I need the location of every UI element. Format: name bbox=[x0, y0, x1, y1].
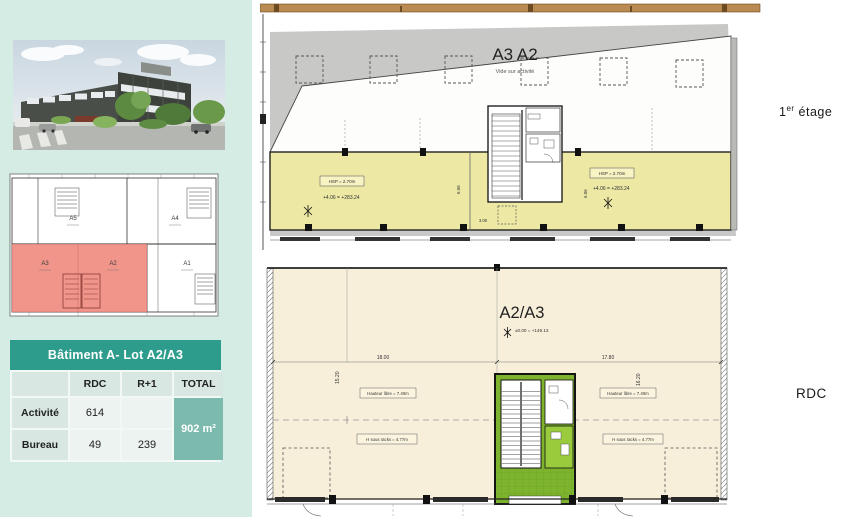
first-floor-label: 1er étage bbox=[779, 104, 832, 119]
lot-label-a1: A1 bbox=[183, 261, 191, 267]
plan2-left-wall bbox=[267, 268, 273, 500]
plan2-height-label-right: Hauteur libre = 7.40m bbox=[607, 391, 649, 396]
col-header-rdc: RDC bbox=[70, 372, 120, 396]
value-bureau-rdc: 49 bbox=[70, 430, 120, 460]
plan1-level-right: +4.06 = +283.24 bbox=[593, 186, 630, 192]
table-grid: RDC R+1 TOTAL Activité 614 902 m² Bureau… bbox=[10, 370, 221, 462]
plan2-dim-1520: 15.20 bbox=[335, 371, 341, 384]
value-activite-r1 bbox=[122, 398, 172, 428]
floorplan-first-floor: A3 A2 Vide sur activité bbox=[260, 2, 762, 254]
plan1-dim-606-right: 6.06 bbox=[583, 189, 588, 198]
row-label-activite: Activité bbox=[12, 398, 68, 428]
first-floor-word: étage bbox=[795, 105, 833, 119]
lot-label-a5: A5 bbox=[69, 216, 77, 222]
plan1-hsp-right: HSP = 2.70m bbox=[599, 171, 626, 176]
building-photo bbox=[13, 40, 225, 150]
table-title: Bâtiment A- Lot A2/A3 bbox=[10, 340, 221, 370]
col-header-r1: R+1 bbox=[122, 372, 172, 396]
plan1-hsp-left: HSP = 2.70m bbox=[329, 179, 356, 184]
table-corner-cell bbox=[12, 372, 68, 396]
plan2-dim-18: 18.00 bbox=[377, 355, 390, 361]
plan2-dim-1780: 17.80 bbox=[602, 355, 615, 361]
brochure-page: A5 A4 A3 A2 A1 Bâtiment A- Lot A2/A3 RDC… bbox=[0, 0, 850, 517]
lot-label-a4: A4 bbox=[171, 216, 179, 222]
row-label-bureau: Bureau bbox=[12, 430, 68, 460]
plan1-stair-core bbox=[488, 106, 562, 202]
plan2-level: ±0.00 = +149.13 bbox=[515, 328, 549, 333]
siteplan-highlight-a2-a3 bbox=[12, 244, 147, 312]
plan2-door-swings bbox=[303, 504, 633, 516]
plan1-title: A3 A2 bbox=[492, 45, 537, 64]
plan1-right-wall bbox=[731, 38, 737, 230]
plan2-entrance-hall bbox=[495, 374, 575, 504]
plan2-dim-1620: 16.20 bbox=[636, 373, 642, 386]
plan1-subtitle: Vide sur activité bbox=[496, 69, 535, 75]
siteplan-thumbnail: A5 A4 A3 A2 A1 bbox=[9, 172, 220, 318]
plan1-level-left: +4.06 = +283.24 bbox=[323, 195, 360, 201]
plan2-right-wall bbox=[721, 268, 727, 500]
value-total: 902 m² bbox=[174, 398, 223, 460]
ground-floor-label: RDC bbox=[796, 386, 827, 401]
surface-table: Bâtiment A- Lot A2/A3 RDC R+1 TOTAL Acti… bbox=[10, 340, 221, 462]
plan2-racks-label-right: H sous racks = 4.77m bbox=[612, 437, 654, 442]
value-bureau-r1: 239 bbox=[122, 430, 172, 460]
col-header-total: TOTAL bbox=[174, 372, 223, 396]
lot-label-a2: A2 bbox=[109, 261, 117, 267]
first-floor-sup: er bbox=[786, 104, 794, 113]
plan2-entrance-door bbox=[509, 496, 561, 504]
plan2-height-label-left: Hauteur libre = 7.40m bbox=[367, 391, 409, 396]
floorplan-ground-floor: 18.00 17.80 15.20 16.20 A2/A3 ±0.00 = +1… bbox=[263, 262, 733, 517]
plan2-racks-label-left: H sous racks = 4.77m bbox=[366, 437, 408, 442]
lot-label-a3: A3 bbox=[41, 261, 49, 267]
plan1-top-band bbox=[260, 4, 760, 12]
plan1-survey-line bbox=[260, 14, 266, 250]
plan1-facade-glazing bbox=[270, 237, 731, 241]
value-activite-rdc: 614 bbox=[70, 398, 120, 428]
plan1-dim-606-left: 6.06 bbox=[456, 185, 461, 194]
plan2-title: A2/A3 bbox=[500, 304, 545, 322]
plan1-dim-308: 3.08 bbox=[479, 218, 488, 223]
